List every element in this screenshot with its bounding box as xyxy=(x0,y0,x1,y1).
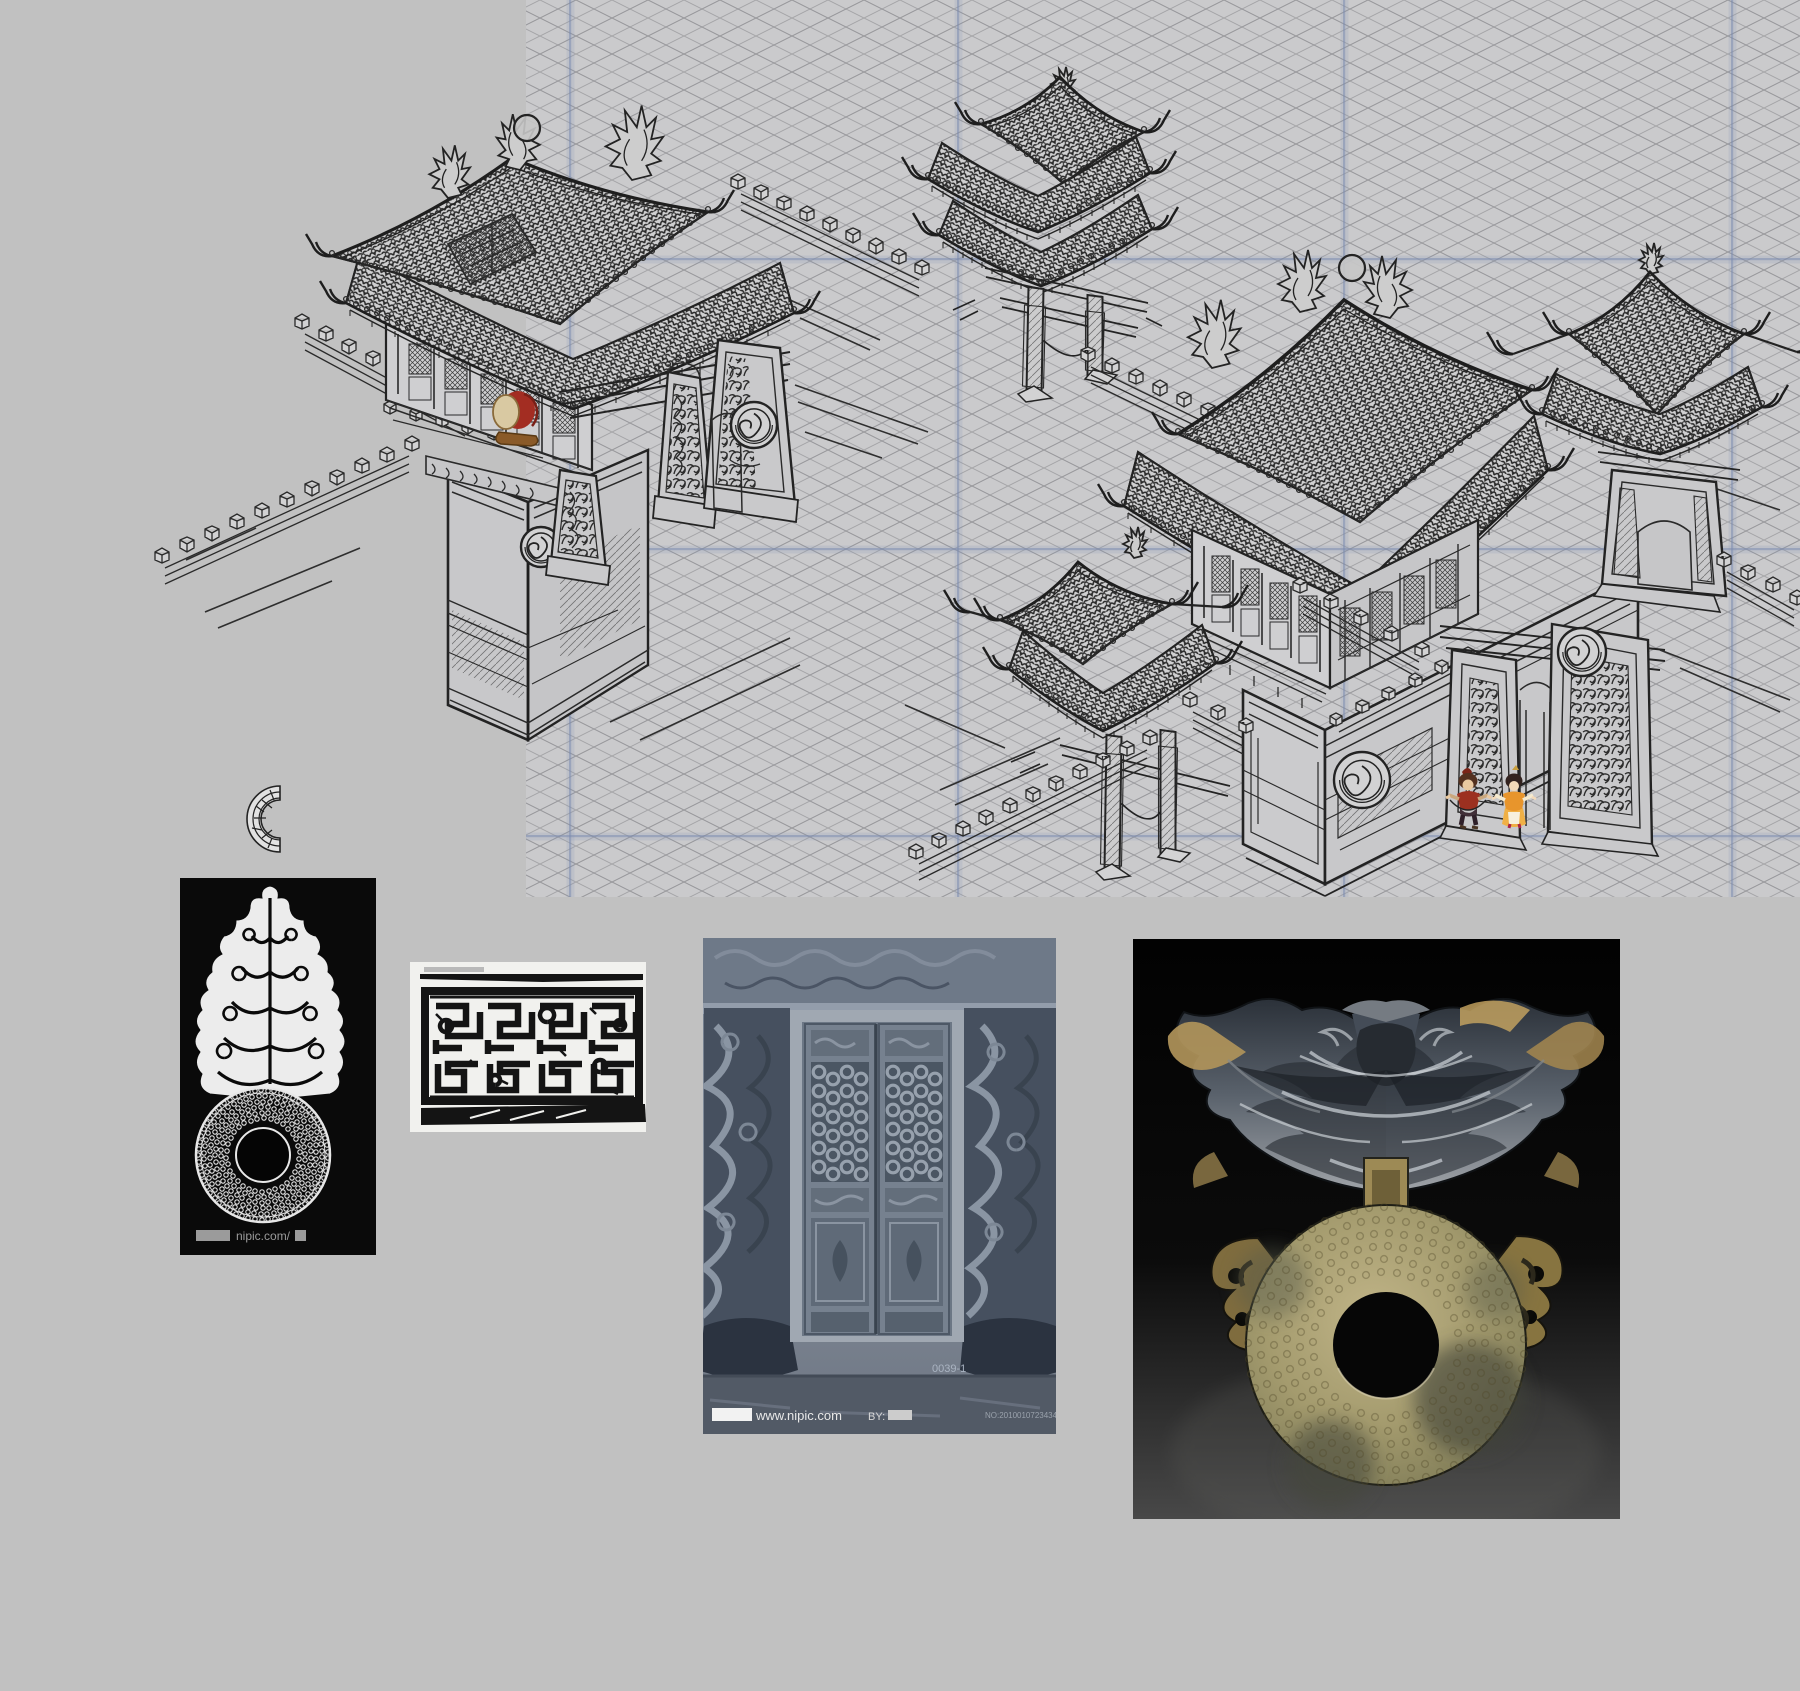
svg-text:www.nipic.com: www.nipic.com xyxy=(755,1408,842,1423)
svg-text:NO:20100107234346098074: NO:20100107234346098074 xyxy=(985,1411,1089,1420)
svg-text:nipic.com/: nipic.com/ xyxy=(236,1229,291,1243)
svg-text:0039-1: 0039-1 xyxy=(932,1363,966,1375)
svg-text:BY:: BY: xyxy=(868,1411,885,1423)
